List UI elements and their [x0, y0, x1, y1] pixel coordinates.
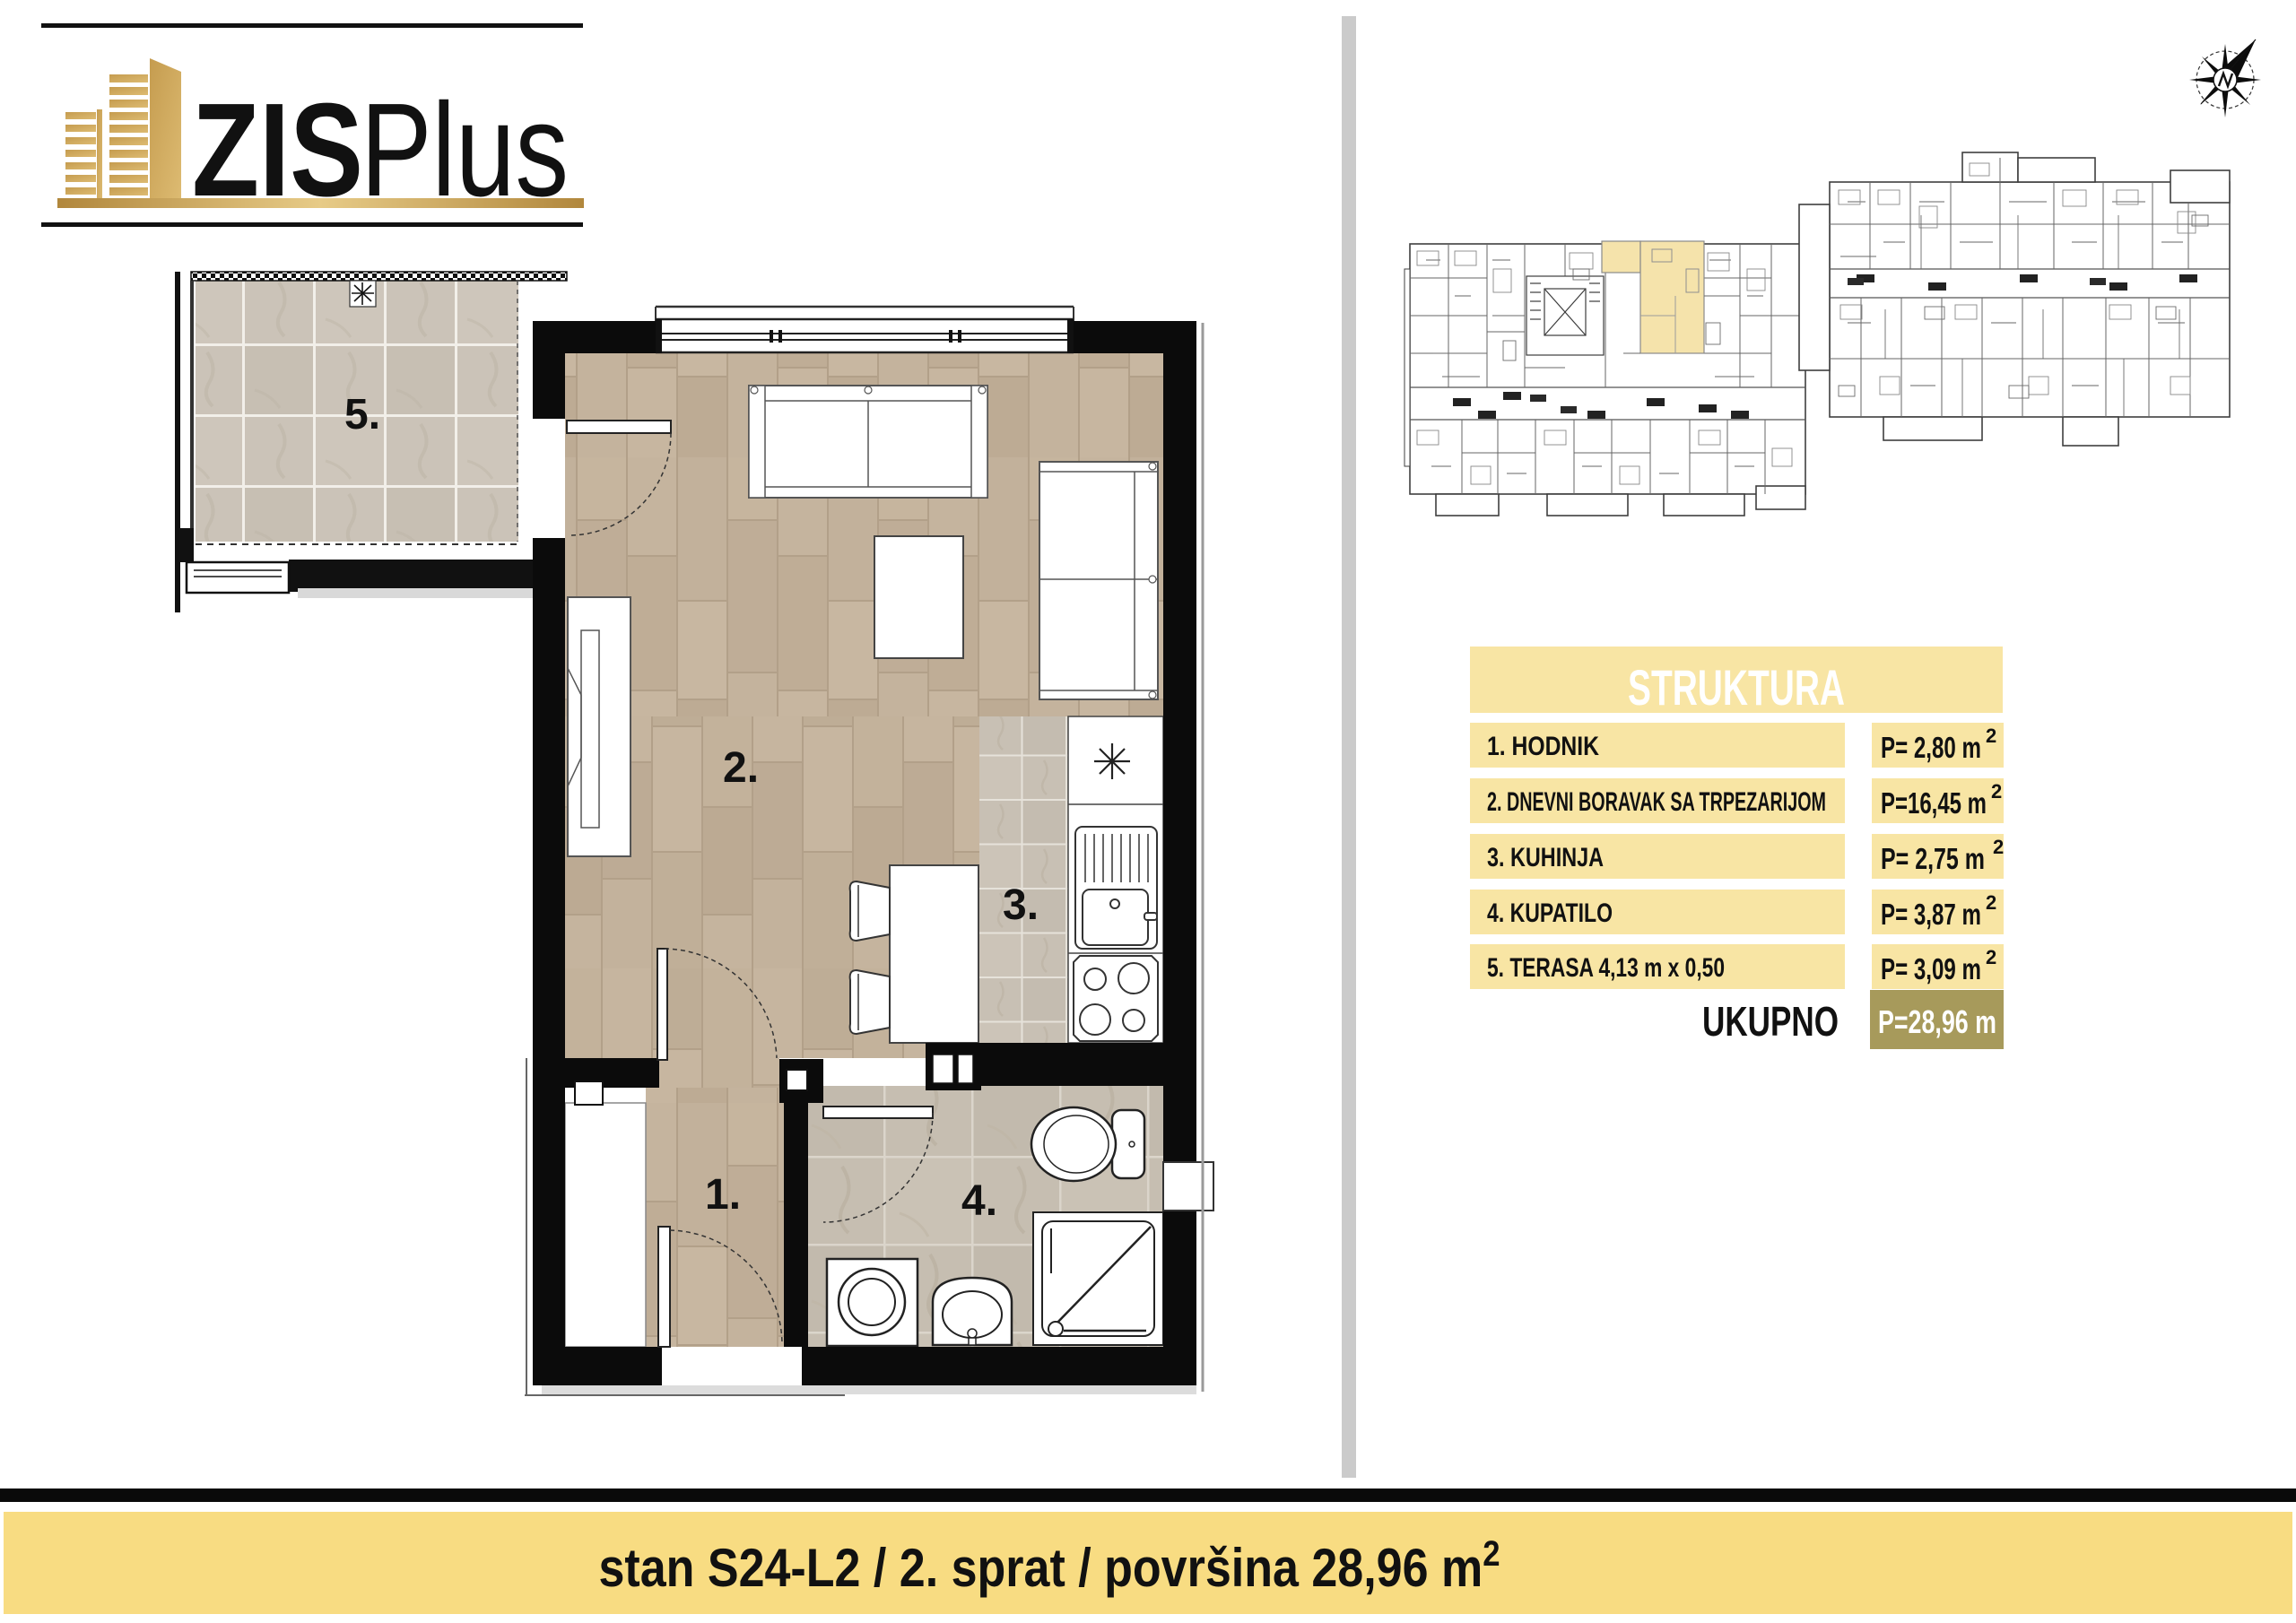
svg-text:3. KUHINJA: 3. KUHINJA — [1487, 843, 1604, 872]
svg-text:Plus: Plus — [361, 76, 569, 224]
svg-text:P= 3,87 m: P= 3,87 m — [1881, 898, 1981, 931]
svg-text:2: 2 — [1993, 836, 2004, 858]
svg-text:1. HODNIK: 1. HODNIK — [1487, 732, 1599, 761]
svg-text:2: 2 — [1986, 946, 1996, 968]
svg-text:3.: 3. — [1003, 881, 1039, 929]
svg-text:4.: 4. — [961, 1177, 997, 1225]
svg-text:P= 3,09 m: P= 3,09 m — [1881, 952, 1981, 985]
svg-text:STRUKTURA: STRUKTURA — [1628, 659, 1845, 716]
svg-text:P=16,45 m: P=16,45 m — [1881, 786, 1987, 820]
svg-text:2.: 2. — [723, 744, 759, 792]
svg-text:5. TERASA 4,13 m x 0,50: 5. TERASA 4,13 m x 0,50 — [1487, 953, 1725, 983]
svg-text:P=28,96 m: P=28,96 m — [1878, 1003, 1996, 1040]
svg-text:ZIS: ZIS — [192, 76, 363, 224]
svg-text:2: 2 — [1986, 891, 1996, 914]
svg-text:UKUPNO: UKUPNO — [1702, 998, 1839, 1045]
svg-text:2: 2 — [1986, 725, 1996, 747]
svg-text:P= 2,75 m: P= 2,75 m — [1881, 842, 1985, 875]
svg-text:2: 2 — [1991, 780, 2002, 803]
svg-text:5.: 5. — [344, 391, 380, 438]
svg-text:P= 2,80 m: P= 2,80 m — [1881, 731, 1981, 764]
svg-text:4. KUPATILO: 4. KUPATILO — [1487, 898, 1613, 928]
svg-text:stan S24-L2 / 2. sprat / površ: stan S24-L2 / 2. sprat / površina 28,96 … — [599, 1534, 1500, 1598]
svg-text:2. DNEVNI BORAVAK SA TRPEZARIJ: 2. DNEVNI BORAVAK SA TRPEZARIJOM — [1487, 787, 1826, 817]
svg-text:1.: 1. — [705, 1171, 741, 1219]
